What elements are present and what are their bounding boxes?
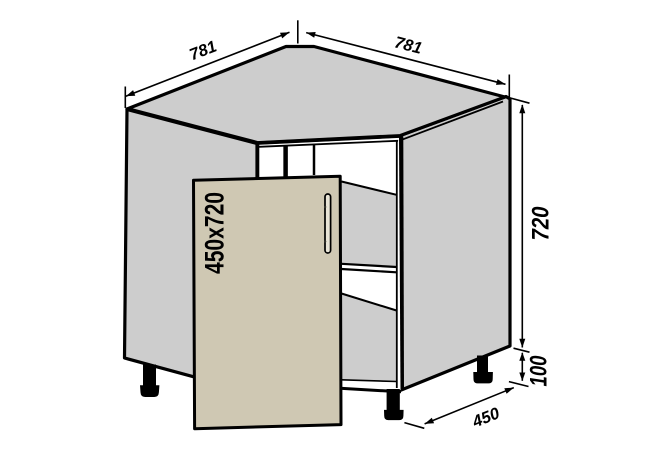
svg-text:100: 100 (526, 355, 553, 387)
svg-text:720: 720 (528, 206, 555, 241)
svg-text:450x720: 450x720 (200, 192, 230, 274)
